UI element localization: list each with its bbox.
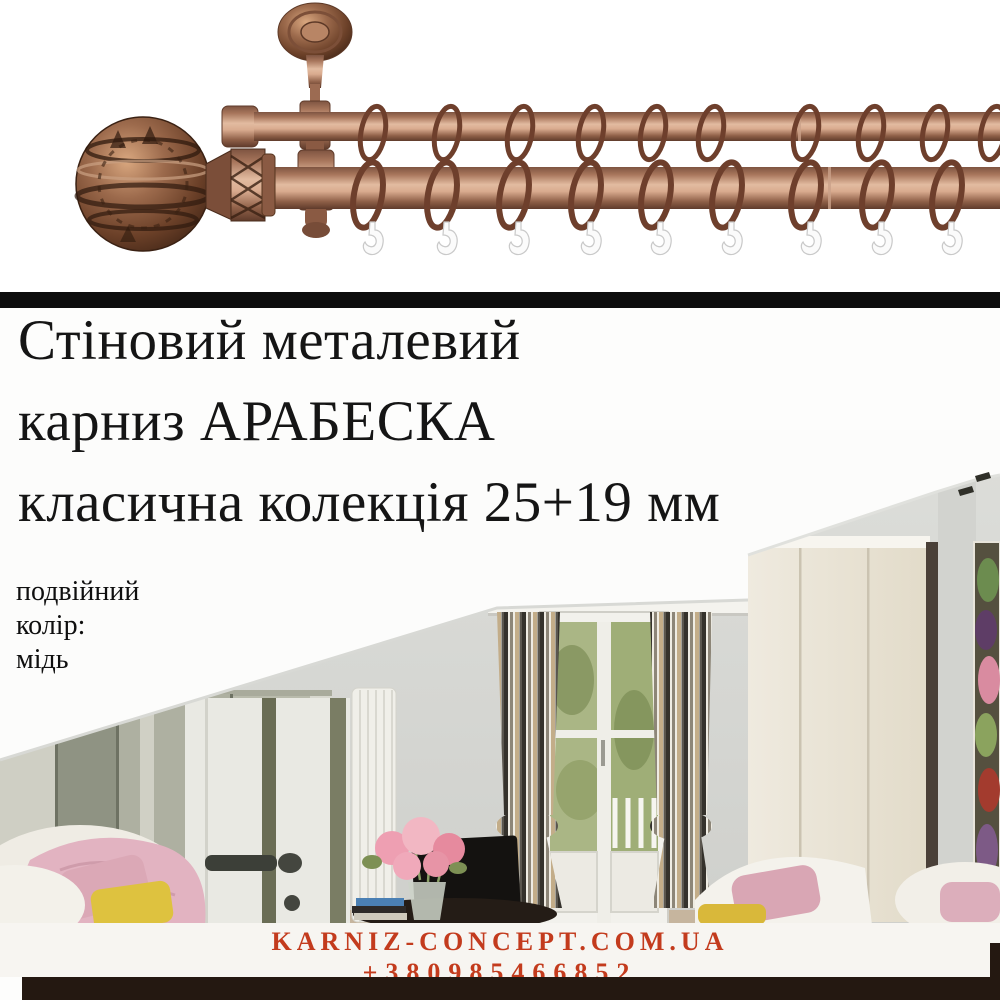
armchair-yellow-cushion xyxy=(698,904,766,925)
books xyxy=(352,898,407,920)
spec-color-value: мідь xyxy=(16,643,139,677)
upper-rod-end-cap xyxy=(222,106,258,147)
spec-type: подвійний xyxy=(16,575,139,609)
product-specs: подвійний колір: мідь xyxy=(16,575,139,677)
door-handle xyxy=(205,855,277,871)
website-url: KARNIZ-CONCEPT.COM.UA xyxy=(0,927,1000,957)
interior-door xyxy=(185,698,350,925)
title-line-2: карниз АРАБЕСКА xyxy=(18,381,978,462)
finial-collar xyxy=(206,149,275,221)
promo-canvas: Стіновий металевий карниз АРАБЕСКА класи… xyxy=(0,0,1000,1000)
spec-color-label: колір: xyxy=(16,609,139,643)
product-photo xyxy=(0,0,1000,292)
bottom-bar xyxy=(22,977,1000,1000)
finial xyxy=(76,117,210,251)
door-lock xyxy=(284,895,300,911)
title-line-3: класична колекція 25+19 мм xyxy=(18,462,978,543)
product-title: Стіновий металевий карниз АРАБЕСКА класи… xyxy=(18,300,978,543)
right-wall xyxy=(938,477,976,922)
title-line-1: Стіновий металевий xyxy=(18,300,978,381)
wall-art xyxy=(974,542,1000,915)
radiator xyxy=(352,688,396,922)
balcony-door-handle xyxy=(601,740,605,766)
footer-contact: KARNIZ-CONCEPT.COM.UA +380985466852 xyxy=(0,923,1000,977)
bottom-bar-notch xyxy=(990,943,1000,1000)
